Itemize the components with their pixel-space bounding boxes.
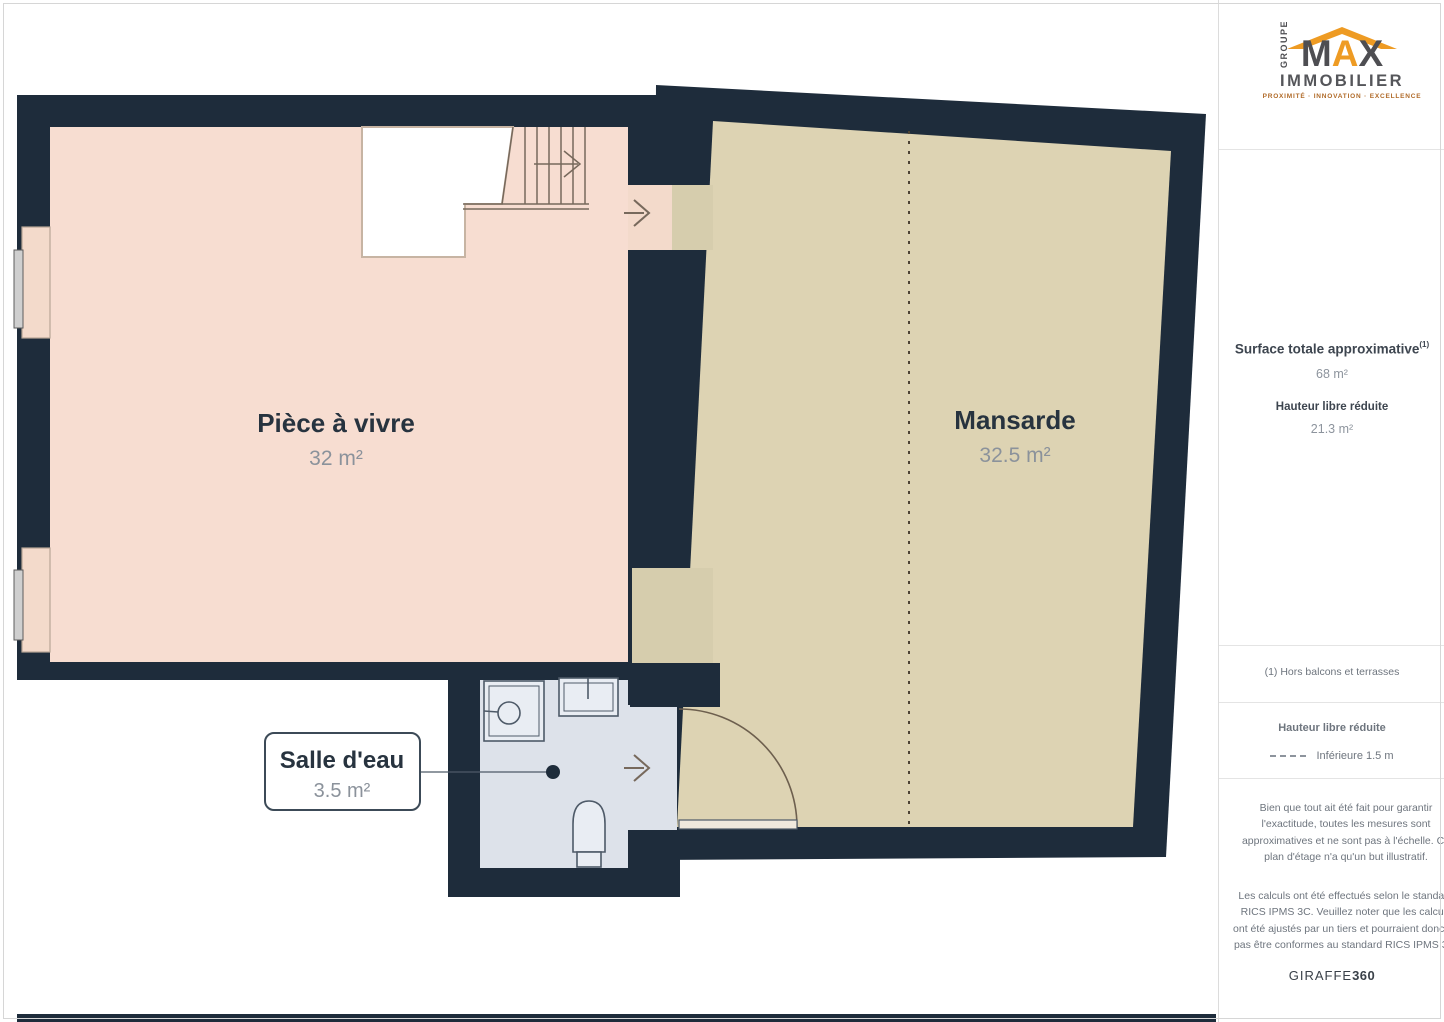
bathroom-label: Salle d'eau	[280, 747, 404, 774]
living-room-area: 32 m²	[309, 447, 363, 470]
sidebar-divider	[1219, 778, 1444, 779]
mansarde-floor-pocket	[632, 568, 713, 665]
shower	[484, 681, 544, 741]
brand-360: 360	[1352, 968, 1375, 983]
callout-anchor-dot	[546, 765, 560, 779]
sidebar-divider	[1219, 149, 1444, 150]
mansarde-label: Mansarde	[954, 405, 1075, 435]
passage-floor-living-side	[628, 185, 672, 250]
legend-title: Hauteur libre réduite	[1219, 722, 1444, 734]
disclaimer-paragraph-2: Les calculs ont été effectués selon le s…	[1219, 888, 1444, 953]
logo-groupe: GROUPE	[1279, 22, 1289, 68]
brand-name: GIRAFFE	[1289, 968, 1352, 983]
legend-row: Inférieure 1.5 m	[1219, 750, 1444, 762]
surface-total-label: Surface totale approximative	[1235, 341, 1420, 356]
disclaimer-paragraph-1: Bien que tout ait été fait pour garantir…	[1219, 800, 1444, 865]
reduced-height-value: 21.3 m²	[1219, 422, 1444, 436]
living-room-floor	[50, 127, 628, 662]
surface-total-block: Surface totale approximative(1) 68 m²	[1219, 340, 1444, 381]
legend-block: Hauteur libre réduite Inférieure 1.5 m	[1219, 722, 1444, 762]
logo-tagline: PROXIMITÉ · INNOVATION · EXCELLENCE	[1263, 91, 1422, 100]
bottom-cutoff-wall	[17, 1014, 1216, 1022]
max-immobilier-logo: GROUPE MAX IMMOBILIER PROXIMITÉ · INNOVA…	[1235, 22, 1429, 122]
floorplan-drawing: Pièce à vivre 32 m² Mansarde 32.5 m² Sal…	[0, 0, 1218, 1022]
mansarde-floor	[677, 121, 1171, 827]
giraffe360-logo: GIRAFFE360	[1219, 968, 1444, 983]
bathroom-area: 3.5 m²	[314, 780, 371, 802]
dashed-line-sample	[1270, 755, 1306, 757]
sidebar-divider	[1219, 702, 1444, 703]
legend-item-label: Inférieure 1.5 m	[1316, 750, 1393, 762]
surface-total-value: 68 m²	[1219, 367, 1444, 381]
floorplan-page: Pièce à vivre 32 m² Mansarde 32.5 m² Sal…	[0, 0, 1444, 1022]
reduced-height-label: Hauteur libre réduite	[1219, 401, 1444, 413]
agency-logo: GROUPE MAX IMMOBILIER PROXIMITÉ · INNOVA…	[1219, 22, 1444, 127]
sidebar-divider	[1219, 645, 1444, 646]
toilet	[573, 801, 605, 867]
info-sidebar: GROUPE MAX IMMOBILIER PROXIMITÉ · INNOVA…	[1218, 0, 1444, 1022]
mansarde-area: 32.5 m²	[979, 444, 1050, 467]
sink	[559, 678, 618, 716]
logo-max: MAX	[1301, 33, 1384, 74]
wall-block-above-door	[630, 663, 720, 707]
reduced-height-block: Hauteur libre réduite 21.3 m²	[1219, 401, 1444, 436]
living-room-label: Pièce à vivre	[257, 408, 415, 438]
footnote-text: (1) Hors balcons et terrasses	[1219, 666, 1444, 678]
logo-immobilier: IMMOBILIER	[1280, 72, 1404, 90]
passage-floor-mansarde-side	[672, 185, 713, 250]
surface-total-footnote-marker: (1)	[1419, 340, 1429, 349]
